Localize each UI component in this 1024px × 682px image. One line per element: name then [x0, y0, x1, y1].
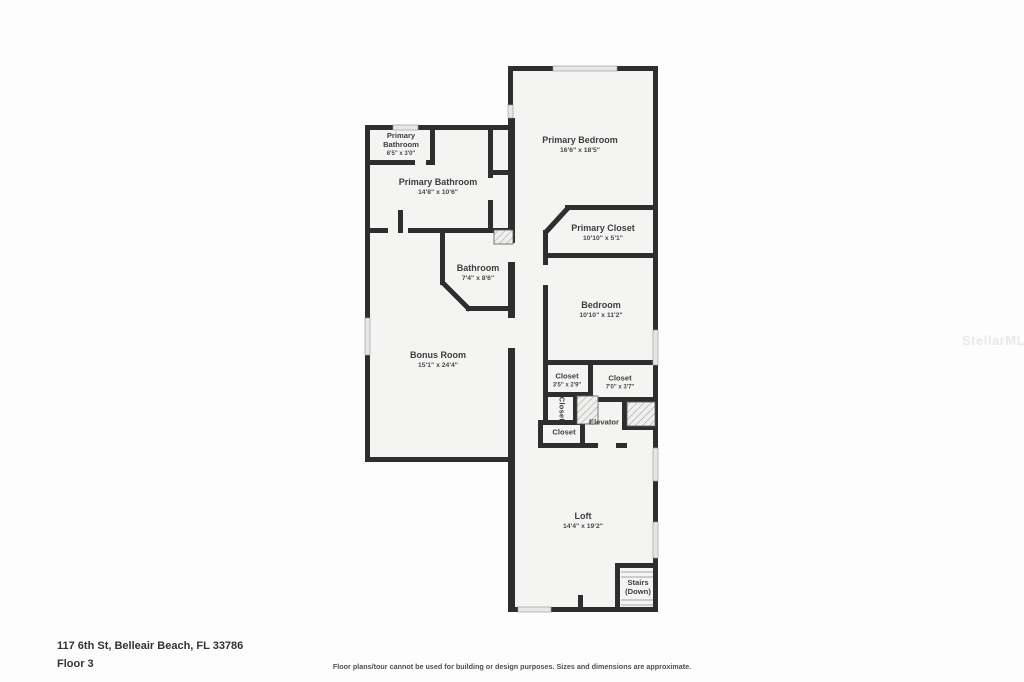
mls-watermark: StellarMLS: [962, 333, 1024, 348]
floor-plan-drawing: [0, 0, 1024, 682]
floor-plan-page: Primary Bathroom 6'5" x 3'0" Primary Bat…: [0, 0, 1024, 682]
disclaimer-text: Floor plans/tour cannot be used for buil…: [0, 662, 1024, 671]
property-address: 117 6th St, Belleair Beach, FL 33786: [57, 640, 243, 652]
